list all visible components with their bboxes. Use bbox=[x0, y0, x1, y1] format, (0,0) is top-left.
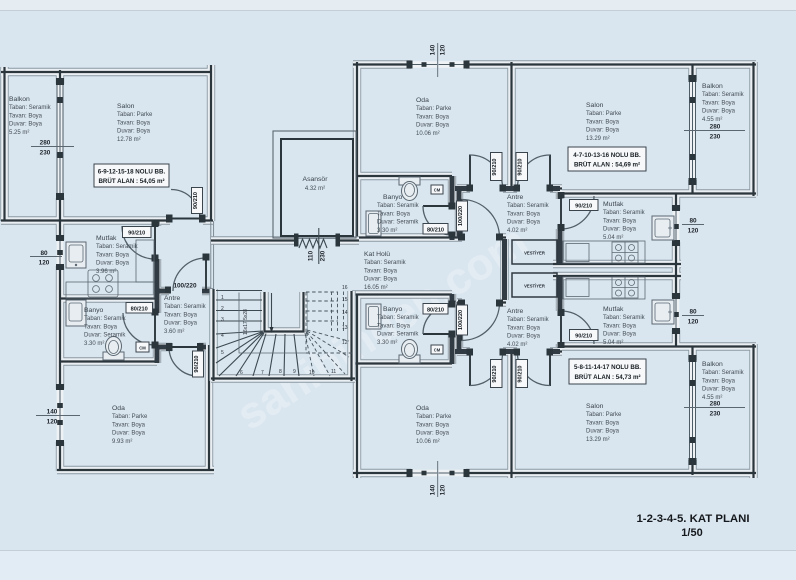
svg-text:5: 5 bbox=[221, 350, 224, 356]
svg-text:7: 7 bbox=[261, 370, 264, 376]
svg-text:14: 14 bbox=[342, 310, 348, 316]
svg-text:90/210: 90/210 bbox=[518, 365, 524, 382]
svg-text:80/210: 80/210 bbox=[427, 308, 444, 314]
svg-text:90/210: 90/210 bbox=[492, 158, 498, 175]
svg-text:80/210: 80/210 bbox=[427, 228, 444, 234]
svg-text:12: 12 bbox=[342, 340, 348, 346]
svg-text:120: 120 bbox=[47, 419, 58, 426]
svg-text:BRÜT ALAN : 54,73 m²: BRÜT ALAN : 54,73 m² bbox=[574, 374, 640, 381]
svg-text:140: 140 bbox=[430, 484, 437, 495]
svg-text:120: 120 bbox=[440, 484, 447, 495]
svg-text:100/220: 100/220 bbox=[458, 206, 464, 226]
svg-text:230: 230 bbox=[40, 150, 51, 157]
svg-text:4-7-10-13-16 NOLU BB.: 4-7-10-13-16 NOLU BB. bbox=[573, 152, 641, 159]
svg-text:280: 280 bbox=[710, 124, 721, 131]
svg-text:VESTİYER: VESTİYER bbox=[524, 284, 545, 289]
svg-text:230: 230 bbox=[710, 411, 721, 418]
svg-text:6-9-12-15-18 NOLU BB.: 6-9-12-15-18 NOLU BB. bbox=[98, 169, 166, 176]
svg-text:90/210: 90/210 bbox=[518, 158, 524, 175]
svg-text:230: 230 bbox=[710, 134, 721, 141]
svg-text:CM: CM bbox=[434, 188, 441, 193]
svg-text:Asansör: Asansör bbox=[303, 176, 329, 183]
svg-text:100/220: 100/220 bbox=[458, 310, 464, 330]
svg-text:13: 13 bbox=[342, 325, 348, 331]
svg-text:90/210: 90/210 bbox=[194, 355, 200, 372]
svg-text:3: 3 bbox=[221, 317, 224, 323]
svg-text:90/210: 90/210 bbox=[575, 204, 592, 210]
svg-text:11: 11 bbox=[331, 369, 336, 375]
svg-text:90/210: 90/210 bbox=[492, 365, 498, 382]
svg-text:120: 120 bbox=[39, 260, 50, 267]
svg-text:BRÜT ALAN : 54,05 m²: BRÜT ALAN : 54,05 m² bbox=[98, 178, 164, 185]
svg-text:280: 280 bbox=[40, 140, 51, 147]
svg-text:80: 80 bbox=[689, 218, 697, 225]
svg-text:140: 140 bbox=[47, 409, 58, 416]
svg-text:2: 2 bbox=[221, 306, 224, 312]
svg-text:16x17.5x28: 16x17.5x28 bbox=[243, 309, 249, 335]
svg-text:120: 120 bbox=[688, 228, 699, 235]
svg-text:110: 110 bbox=[308, 250, 315, 261]
svg-text:280: 280 bbox=[710, 401, 721, 408]
svg-text:9: 9 bbox=[293, 369, 296, 375]
svg-text:80: 80 bbox=[40, 250, 48, 257]
svg-text:120: 120 bbox=[440, 44, 447, 55]
svg-text:5-8-11-14-17 NOLU BB.: 5-8-11-14-17 NOLU BB. bbox=[574, 364, 641, 371]
svg-text:1-2-3-4-5. KAT PLANI: 1-2-3-4-5. KAT PLANI bbox=[636, 513, 749, 525]
svg-text:6: 6 bbox=[240, 370, 243, 376]
svg-text:90/210: 90/210 bbox=[193, 192, 199, 209]
svg-text:90/210: 90/210 bbox=[575, 334, 592, 340]
svg-text:16: 16 bbox=[342, 285, 348, 291]
svg-text:4.32 m²: 4.32 m² bbox=[305, 186, 325, 192]
svg-text:100/220: 100/220 bbox=[173, 283, 197, 290]
svg-text:CM: CM bbox=[434, 348, 441, 353]
svg-text:BRÜT ALAN : 54,69 m²: BRÜT ALAN : 54,69 m² bbox=[574, 162, 640, 169]
svg-text:80: 80 bbox=[689, 309, 697, 316]
svg-text:230: 230 bbox=[320, 250, 327, 261]
svg-text:4: 4 bbox=[221, 333, 224, 339]
svg-text:90/210: 90/210 bbox=[128, 231, 145, 237]
svg-text:1: 1 bbox=[221, 295, 224, 301]
svg-text:1/50: 1/50 bbox=[681, 527, 702, 539]
svg-text:80/210: 80/210 bbox=[131, 307, 148, 313]
svg-text:VESTİYER: VESTİYER bbox=[524, 251, 545, 256]
svg-text:8: 8 bbox=[279, 369, 282, 375]
svg-text:140: 140 bbox=[430, 44, 437, 55]
svg-text:15: 15 bbox=[342, 297, 348, 303]
svg-text:CM: CM bbox=[139, 346, 146, 351]
svg-text:120: 120 bbox=[688, 319, 699, 326]
svg-text:10: 10 bbox=[309, 370, 315, 376]
